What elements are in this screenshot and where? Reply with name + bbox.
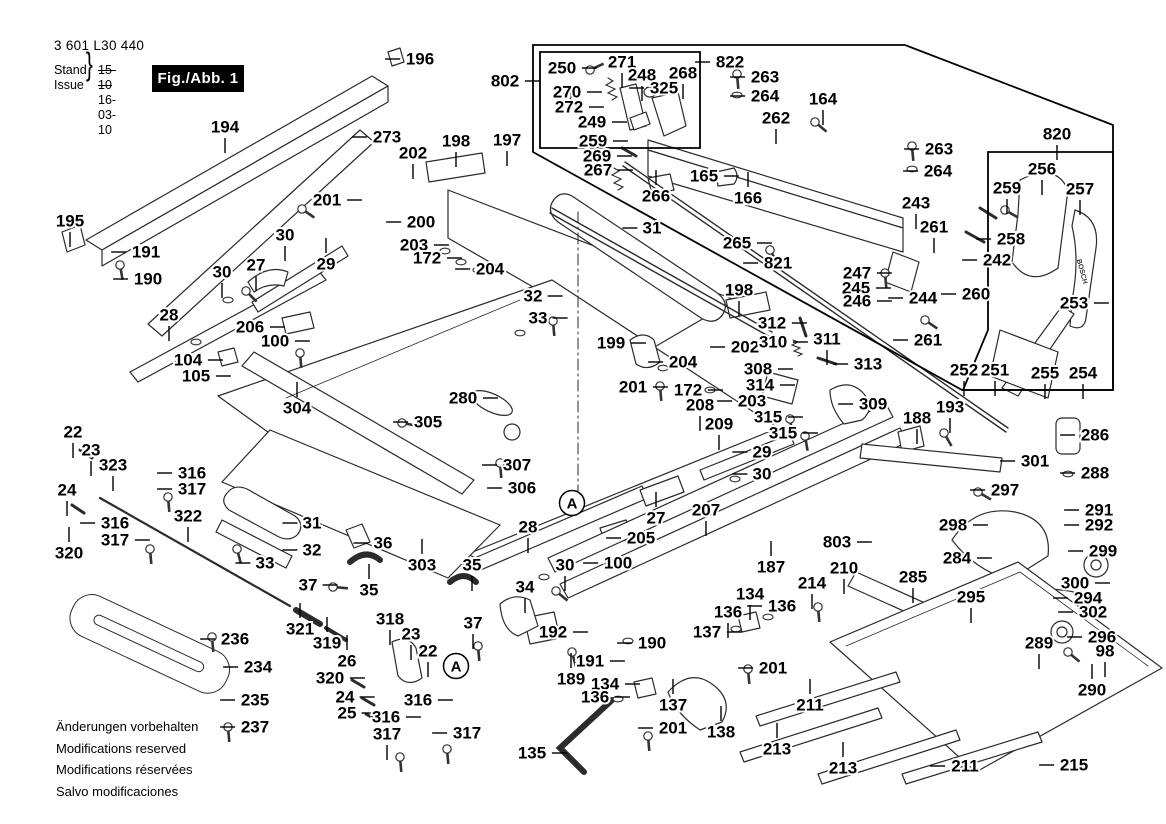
- screw-icon: [164, 493, 172, 501]
- washer-icon: [658, 365, 668, 371]
- part-label-207: 207: [692, 501, 720, 520]
- part-label-243: 243: [902, 194, 930, 213]
- note-en: Modifications reserved: [56, 738, 198, 760]
- screw-shaft-icon: [300, 357, 301, 368]
- part-label-137: 137: [693, 623, 721, 642]
- part-label-312: 312: [758, 314, 786, 333]
- part-label-136: 136: [714, 603, 742, 622]
- part-label-30: 30: [276, 226, 295, 245]
- part-label-822: 822: [716, 53, 744, 72]
- part-label-236: 236: [221, 630, 249, 649]
- part-label-264: 264: [751, 87, 780, 106]
- screw-icon: [443, 745, 451, 753]
- disc-300-hub: [1091, 560, 1101, 570]
- part-label-803: 803: [823, 533, 851, 552]
- part-label-164: 164: [809, 90, 838, 109]
- part-label-259: 259: [993, 179, 1021, 198]
- part-label-290: 290: [1078, 681, 1106, 700]
- part-label-321: 321: [286, 620, 314, 639]
- screw-shaft-icon: [748, 673, 749, 684]
- part-label-211: 211: [796, 696, 823, 715]
- screw-shaft-icon: [238, 553, 241, 564]
- screw-shaft-icon: [737, 78, 738, 89]
- part-label-820: 820: [1043, 125, 1071, 144]
- part-label-255: 255: [1031, 364, 1059, 383]
- part-label-249: 249: [578, 113, 606, 132]
- part-label-263: 263: [925, 140, 953, 159]
- clip-165: [716, 168, 737, 186]
- detail-marker-a: A: [451, 659, 462, 676]
- part-label-307: 307: [503, 456, 531, 475]
- part-number: 3 601 L30 440: [54, 38, 144, 53]
- part-label-242: 242: [983, 251, 1011, 270]
- part-label-28: 28: [160, 306, 179, 325]
- part-label-310: 310: [759, 333, 787, 352]
- issue-label: Issue: [54, 78, 87, 93]
- screw-shaft-icon: [337, 587, 348, 588]
- part-label-319: 319: [313, 634, 341, 653]
- part-label-273: 273: [373, 128, 401, 147]
- part-label-318: 318: [376, 610, 404, 629]
- part-label-31: 31: [303, 514, 322, 533]
- part-label-302: 302: [1079, 603, 1107, 622]
- part-label-266: 266: [642, 187, 670, 206]
- part-label-194: 194: [211, 118, 240, 137]
- screw-icon: [786, 415, 794, 423]
- part-label-313: 313: [854, 355, 882, 374]
- part-label-201: 201: [659, 719, 687, 738]
- part-label-36: 36: [374, 534, 393, 553]
- part-label-137: 137: [659, 696, 687, 715]
- note-de: Änderungen vorbehalten: [56, 716, 198, 738]
- part-label-196: 196: [406, 50, 434, 69]
- part-label-299: 299: [1089, 542, 1117, 561]
- part-label-136: 136: [768, 597, 796, 616]
- screw-icon: [329, 583, 337, 591]
- clamp-104: [218, 348, 238, 366]
- part-label-23: 23: [82, 441, 101, 460]
- screw-shaft-icon: [400, 761, 401, 772]
- part-label-322: 322: [174, 507, 202, 526]
- part-label-192: 192: [539, 623, 567, 642]
- part-label-285: 285: [899, 568, 927, 587]
- washer-icon: [1063, 471, 1073, 477]
- part-label-305: 305: [414, 413, 442, 432]
- lever-318: [392, 639, 422, 682]
- part-label-30: 30: [213, 263, 232, 282]
- hex-key-135: [560, 700, 612, 772]
- part-label-802: 802: [491, 72, 519, 91]
- part-label-821: 821: [764, 254, 792, 273]
- part-label-280: 280: [449, 389, 477, 408]
- part-label-34: 34: [516, 578, 535, 597]
- screw-shaft-icon: [553, 325, 554, 336]
- part-label-136: 136: [581, 688, 609, 707]
- part-label-33: 33: [256, 554, 275, 573]
- screw-icon: [116, 261, 124, 269]
- screw-shaft-icon: [447, 753, 448, 764]
- part-label-235: 235: [241, 691, 269, 710]
- screw-shaft-icon: [305, 211, 314, 217]
- part-label-244: 244: [909, 289, 938, 308]
- screw-icon: [814, 603, 822, 611]
- part-label-304: 304: [283, 399, 312, 418]
- parts-diagram-page: BOSCH 1941962731951911902021981972013029…: [0, 0, 1166, 824]
- part-label-27: 27: [247, 256, 266, 275]
- screw-shaft-icon: [928, 322, 937, 328]
- note-es: Salvo modificaciones: [56, 781, 198, 803]
- screw-shaft-icon: [648, 740, 649, 751]
- part-label-193: 193: [936, 398, 964, 417]
- spring-267: [612, 168, 623, 190]
- stand-label: Stand: [54, 63, 87, 78]
- part-label-234: 234: [244, 658, 273, 677]
- part-label-31: 31: [643, 219, 662, 238]
- screw-shaft-icon: [168, 501, 169, 512]
- part-label-201: 201: [313, 191, 341, 210]
- part-label-284: 284: [943, 549, 972, 568]
- part-label-297: 297: [991, 481, 1019, 500]
- part-label-260: 260: [962, 285, 990, 304]
- part-label-257: 257: [1066, 180, 1094, 199]
- part-label-323: 323: [99, 456, 127, 475]
- screw-shaft-icon: [500, 467, 501, 478]
- table-hole-280: [504, 424, 520, 440]
- part-label-134: 134: [736, 585, 765, 604]
- part-label-320: 320: [55, 544, 83, 563]
- part-label-135: 135: [518, 744, 546, 763]
- part-label-309: 309: [859, 395, 887, 414]
- part-label-251: 251: [981, 361, 1009, 380]
- part-label-35: 35: [463, 556, 482, 575]
- part-label-100: 100: [604, 554, 632, 573]
- screw-icon: [146, 545, 154, 553]
- screw-icon: [233, 545, 241, 553]
- part-label-256: 256: [1028, 160, 1056, 179]
- part-label-265: 265: [723, 234, 751, 253]
- part-label-289: 289: [1025, 634, 1053, 653]
- block-134a: [634, 678, 656, 698]
- washer-icon: [732, 92, 742, 98]
- part-label-33: 33: [529, 309, 548, 328]
- part-label-317: 317: [178, 480, 206, 499]
- part-label-258: 258: [997, 230, 1025, 249]
- part-label-314: 314: [746, 376, 775, 395]
- part-label-211: 211: [951, 757, 978, 776]
- part-label-317: 317: [373, 725, 401, 744]
- washer-icon: [539, 574, 549, 580]
- part-label-246: 246: [843, 292, 871, 311]
- screw-shaft-icon: [818, 125, 826, 132]
- screw-shaft-icon: [912, 150, 913, 161]
- part-label-286: 286: [1081, 426, 1109, 445]
- part-label-303: 303: [408, 556, 436, 575]
- part-label-254: 254: [1069, 364, 1098, 383]
- note-fr: Modifications réservées: [56, 759, 198, 781]
- part-label-214: 214: [798, 574, 827, 593]
- part-label-188: 188: [903, 409, 931, 428]
- part-label-202: 202: [399, 144, 427, 163]
- part-label-198: 198: [725, 281, 753, 300]
- part-label-215: 215: [1060, 756, 1088, 775]
- screw-shaft-icon: [885, 277, 886, 288]
- part-label-191: 191: [132, 243, 160, 262]
- part-label-252: 252: [950, 361, 978, 380]
- part-label-24: 24: [58, 481, 77, 500]
- part-label-201: 201: [759, 659, 787, 678]
- part-label-209: 209: [705, 415, 733, 434]
- bracket-243: [885, 252, 919, 292]
- part-label-201: 201: [619, 378, 647, 397]
- screw-shaft-icon: [228, 731, 229, 742]
- knob-302-hub: [1057, 627, 1067, 637]
- part-label-189: 189: [557, 670, 585, 689]
- washer-icon: [731, 626, 741, 632]
- stand-issue-block: Stand Issue } 15-10 16-03-10: [54, 63, 87, 93]
- part-label-187: 187: [757, 558, 785, 577]
- part-label-210: 210: [830, 559, 858, 578]
- screw-icon: [474, 642, 482, 650]
- screw-icon: [744, 665, 752, 673]
- screw-shaft-icon: [1008, 212, 1018, 218]
- screw-shaft-icon: [212, 641, 213, 652]
- part-label-250: 250: [548, 59, 576, 78]
- part-label-208: 208: [686, 396, 714, 415]
- part-label-27: 27: [647, 509, 666, 528]
- part-label-29: 29: [317, 255, 336, 274]
- part-label-198: 198: [442, 132, 470, 151]
- screw-shaft-icon: [249, 294, 257, 302]
- screw-shaft-icon: [981, 494, 991, 500]
- screw-icon: [644, 732, 652, 740]
- part-label-306: 306: [508, 479, 536, 498]
- part-label-267: 267: [584, 161, 612, 180]
- brace-glyph: }: [86, 57, 93, 72]
- end-cap-196: [388, 48, 404, 66]
- part-label-262: 262: [762, 109, 790, 128]
- washer-icon: [223, 297, 233, 303]
- part-label-195: 195: [56, 212, 84, 231]
- part-label-197: 197: [493, 131, 521, 150]
- part-label-202: 202: [731, 338, 759, 357]
- part-label-200: 200: [407, 213, 435, 232]
- part-label-292: 292: [1085, 516, 1113, 535]
- part-label-37: 37: [464, 614, 483, 633]
- part-label-190: 190: [638, 634, 666, 653]
- part-label-311: 311: [813, 330, 840, 349]
- screw-icon: [586, 66, 594, 74]
- part-label-263: 263: [751, 68, 779, 87]
- part-label-288: 288: [1081, 464, 1109, 483]
- washer-icon: [456, 259, 466, 265]
- part-label-28: 28: [519, 518, 538, 537]
- part-label-213: 213: [763, 740, 791, 759]
- part-label-213: 213: [829, 759, 857, 778]
- rail-301: [860, 444, 1002, 472]
- part-label-316: 316: [404, 691, 432, 710]
- stand-date-old: 15-10: [98, 63, 116, 93]
- part-label-22: 22: [419, 642, 438, 661]
- part-label-253: 253: [1060, 294, 1088, 313]
- washer-icon: [440, 248, 450, 254]
- screw-shaft-icon: [121, 269, 123, 280]
- latch-268: [652, 92, 686, 136]
- part-label-317: 317: [101, 531, 129, 550]
- screw-icon: [296, 349, 304, 357]
- figure-label-badge: Fig./Abb. 1: [152, 65, 244, 92]
- part-label-37: 37: [299, 576, 318, 595]
- part-label-22: 22: [64, 423, 83, 442]
- part-label-261: 261: [914, 331, 942, 350]
- part-label-317: 317: [453, 724, 481, 743]
- screw-icon: [656, 382, 664, 390]
- part-label-315: 315: [769, 424, 797, 443]
- part-label-237: 237: [241, 718, 269, 737]
- part-label-165: 165: [690, 167, 718, 186]
- part-label-301: 301: [1021, 452, 1049, 471]
- part-label-29: 29: [753, 443, 772, 462]
- washer-icon: [191, 339, 201, 345]
- part-label-199: 199: [597, 334, 625, 353]
- part-label-261: 261: [920, 218, 948, 237]
- screw-shaft-icon: [946, 436, 952, 446]
- screw-icon: [208, 633, 216, 641]
- part-label-166: 166: [734, 189, 762, 208]
- part-label-205: 205: [627, 529, 655, 548]
- washer-icon: [730, 476, 740, 482]
- part-label-204: 204: [476, 260, 505, 279]
- modification-notes: Änderungen vorbehalten Modifications res…: [56, 716, 198, 802]
- part-label-172: 172: [413, 249, 441, 268]
- part-label-204: 204: [669, 353, 698, 372]
- screw-shaft-icon: [818, 611, 819, 622]
- part-label-32: 32: [303, 541, 322, 560]
- washer-icon: [515, 330, 525, 336]
- screw-shaft-icon: [478, 650, 479, 661]
- part-label-325: 325: [650, 79, 678, 98]
- part-label-190: 190: [134, 270, 162, 289]
- screw-icon: [398, 419, 406, 427]
- part-label-98: 98: [1096, 642, 1115, 661]
- part-label-264: 264: [924, 162, 953, 181]
- screw-shaft-icon: [150, 553, 151, 564]
- part-label-298: 298: [939, 516, 967, 535]
- figure-label: Fig./Abb. 1: [157, 70, 238, 87]
- part-label-295: 295: [957, 588, 985, 607]
- part-label-138: 138: [707, 723, 735, 742]
- knob-286: [1056, 418, 1080, 454]
- part-label-25: 25: [338, 704, 357, 723]
- part-label-30: 30: [753, 465, 772, 484]
- exploded-view-drawing: BOSCH 1941962731951911902021981972013029…: [0, 0, 1166, 824]
- detail-marker-a: A: [567, 496, 578, 513]
- part-label-100: 100: [261, 332, 289, 351]
- issue-date: 16-03-10: [98, 93, 116, 138]
- part-label-191: 191: [576, 652, 604, 671]
- blade-cover-234: [63, 588, 236, 700]
- screw-shaft-icon: [660, 390, 661, 401]
- part-label-320: 320: [316, 669, 344, 688]
- part-label-32: 32: [524, 287, 543, 306]
- part-label-105: 105: [182, 367, 210, 386]
- part-label-35: 35: [360, 581, 379, 600]
- curve-35a: [350, 554, 380, 562]
- screw-icon: [396, 753, 404, 761]
- spring-271: [606, 78, 617, 100]
- part-label-30: 30: [556, 556, 575, 575]
